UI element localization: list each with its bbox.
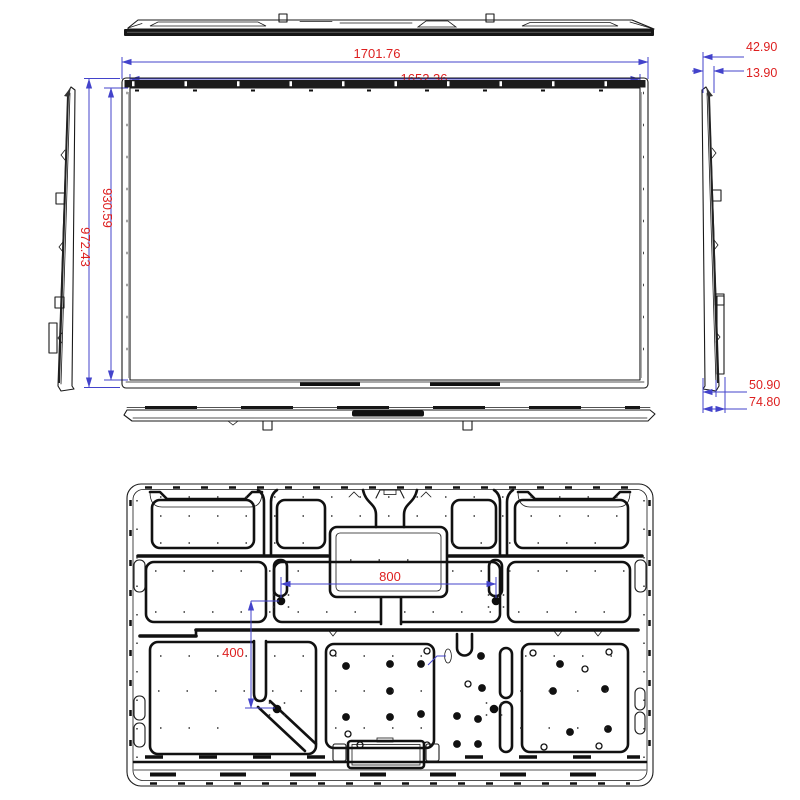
rear-top-center-bracket (349, 490, 431, 527)
rear-panel-bottom-right (522, 644, 628, 752)
dim-display-height: 930.59 (100, 188, 115, 228)
left-mount-rail (49, 323, 57, 353)
front-outer-frame (122, 78, 648, 388)
dim-vesa-vertical: 400 (222, 645, 244, 660)
dim-overall-width: 1701.76 (354, 46, 401, 61)
rear-view (127, 484, 653, 786)
top-profile-view (124, 14, 654, 36)
rear-connector-recess (333, 738, 439, 768)
dim-top-depth-a: 42.90 (746, 40, 777, 54)
bottom-profile-view (124, 408, 655, 431)
top-eyebolt-right (486, 14, 494, 22)
dim-vesa-horizontal: 800 (379, 569, 401, 584)
height-dimensions: 972.43 930.59 (78, 79, 128, 388)
top-eyebolt-left (279, 14, 287, 22)
bottom-center-connector (352, 411, 424, 417)
slot-leader-line (428, 656, 446, 665)
dim-overall-height: 972.43 (78, 227, 93, 267)
drawing-svg: 1701.76 1652.36 972.43 930.59 (0, 0, 800, 800)
rear-panel-bottom-midright (445, 634, 512, 752)
front-top-band (125, 80, 646, 88)
dim-bottom-depth-a: 50.90 (749, 378, 780, 392)
left-side-view (49, 87, 75, 391)
page: 1701.76 1652.36 972.43 930.59 (0, 0, 800, 800)
rear-panel-bottom-middle (326, 644, 434, 748)
front-screen-area (130, 88, 640, 380)
front-view (122, 78, 648, 388)
right-side-view (702, 87, 724, 391)
dim-top-depth-b: 13.90 (746, 66, 777, 80)
vesa-dimensions: 800 400 (222, 569, 496, 708)
dim-bottom-depth-b: 74.80 (749, 395, 780, 409)
